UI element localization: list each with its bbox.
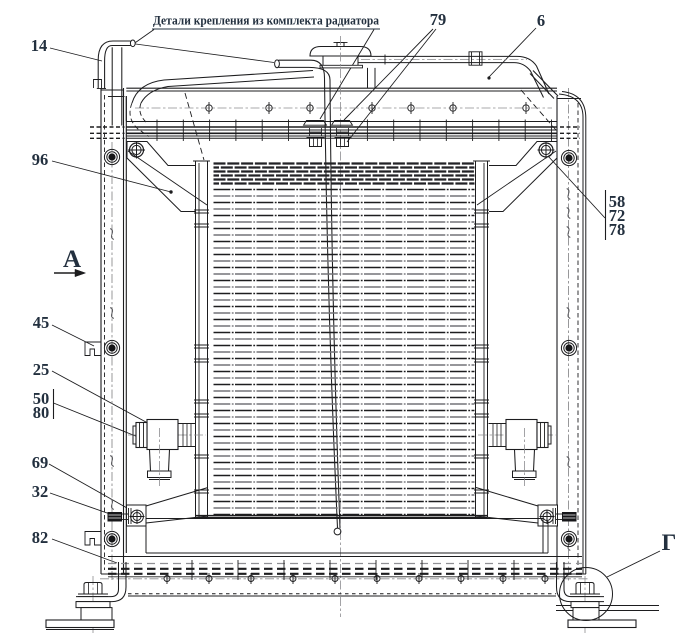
svg-text:78: 78 [609,220,626,239]
svg-text:Детали крепления из комплекта: Детали крепления из комплекта радиатора [153,14,379,28]
svg-text:14: 14 [31,36,48,55]
svg-text:96: 96 [32,150,49,169]
svg-text:69: 69 [32,453,49,472]
svg-text:82: 82 [32,528,49,547]
svg-text:32: 32 [32,482,49,501]
svg-text:6: 6 [537,11,545,30]
svg-text:Г: Г [662,530,677,555]
svg-text:45: 45 [33,313,50,332]
svg-text:25: 25 [33,360,50,379]
svg-text:80: 80 [33,403,50,422]
svg-text:А: А [63,246,81,273]
svg-text:79: 79 [430,10,447,29]
